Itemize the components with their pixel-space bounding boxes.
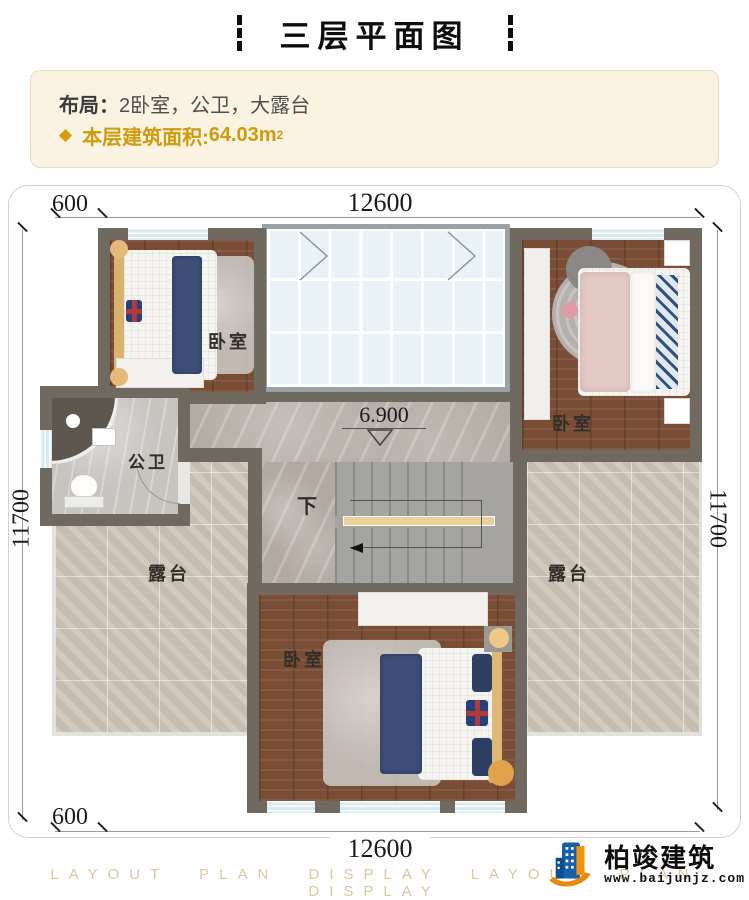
brand-website: www.baijunjz.com xyxy=(604,872,745,886)
terrace-right-label: 露台 xyxy=(548,560,590,586)
area-line: ◆ 本层建筑面积: 64.03m 2 xyxy=(59,121,690,150)
layout-value: 2卧室，公卫，大露台 xyxy=(119,89,310,118)
brand-name: 柏竣建筑 xyxy=(604,845,745,872)
page-title: 三层平面图 xyxy=(280,11,470,56)
layout-label: 布局： xyxy=(59,89,119,118)
dim-top-offset: 600 xyxy=(40,191,100,218)
skylight-opening-marker-icon xyxy=(447,231,476,281)
window xyxy=(340,801,440,813)
bedroom-tr-pouf xyxy=(562,302,578,318)
bathroom-toilet xyxy=(70,474,98,498)
bedroom-tr-nightstand xyxy=(664,240,690,266)
bedroom-b-pouf xyxy=(488,760,514,786)
bathroom-label: 公卫 xyxy=(128,448,168,473)
dim-line-top xyxy=(55,217,700,218)
brand-text-block: 柏竣建筑 www.baijunjz.com xyxy=(604,845,745,886)
bedroom-top-left-label: 卧室 xyxy=(208,328,250,354)
layout-line: 布局： 2卧室，公卫，大露台 xyxy=(59,89,690,118)
dim-line-bottom xyxy=(55,831,700,832)
bedroom-b-wardrobe xyxy=(358,592,488,626)
area-label: 本层建筑面积: xyxy=(82,121,209,150)
bedroom-tl-blanket xyxy=(172,256,202,374)
brand-logo-block: 柏竣建筑 www.baijunjz.com xyxy=(544,838,745,892)
bedroom-b-pillow xyxy=(472,654,492,692)
bedroom-b-blanket xyxy=(380,654,422,774)
bedroom-tl-flag-pillow xyxy=(126,300,142,322)
area-superscript: 2 xyxy=(277,128,284,142)
info-card: 布局： 2卧室，公卫，大露台 ◆ 本层建筑面积: 64.03m 2 xyxy=(30,70,719,168)
bedroom-b-nightstand-lamp xyxy=(489,628,509,648)
dim-left-height: 11700 xyxy=(9,479,36,559)
title-dash-right-icon xyxy=(508,15,513,51)
bedroom-tr-nightstand xyxy=(664,398,690,424)
title-dash-left-icon xyxy=(237,15,242,51)
terrace-right-floor xyxy=(527,462,702,736)
stair-path-line xyxy=(350,500,482,548)
bathroom-sink xyxy=(92,428,116,446)
terrace-left-label: 露台 xyxy=(148,560,190,586)
window xyxy=(455,801,505,813)
diamond-icon: ◆ xyxy=(59,125,72,145)
dim-bottom-offset: 600 xyxy=(40,804,100,831)
bedroom-tl-nightstand xyxy=(110,240,128,258)
bedroom-bottom-label: 卧室 xyxy=(283,646,325,672)
bedroom-tl-nightstand xyxy=(110,368,128,386)
elevation-value: 6.900 xyxy=(342,402,426,428)
skylight-opening-marker-icon xyxy=(299,231,328,281)
bedroom-top-right-label: 卧室 xyxy=(552,410,594,436)
window xyxy=(128,228,208,240)
window xyxy=(40,430,52,468)
dim-bottom-width: 12600 xyxy=(330,834,430,864)
hall-strip-floor xyxy=(262,462,335,583)
bathroom-toilet-tank xyxy=(64,496,104,508)
wall-segment xyxy=(262,392,510,402)
elevation-triangle-icon xyxy=(367,429,393,446)
wall-segment xyxy=(248,448,262,588)
area-value: 64.03m xyxy=(209,124,277,147)
window xyxy=(592,228,664,240)
bedroom-b-flag-pillow xyxy=(466,700,488,726)
dim-top-width: 12600 xyxy=(330,188,430,218)
baijun-logo-icon xyxy=(544,838,598,892)
bedroom-tr-accent-pillows xyxy=(656,275,678,389)
stair-direction-arrow-icon xyxy=(350,543,363,553)
bedroom-tr-pillow xyxy=(630,271,656,393)
dim-right-height: 11700 xyxy=(704,479,731,559)
bedroom-tr-duvet xyxy=(580,272,630,392)
bathroom-showerhead-icon xyxy=(66,414,80,428)
stairs-down-label: 下 xyxy=(297,490,320,519)
page-header: 三层平面图 xyxy=(0,10,749,56)
wall-segment xyxy=(513,448,527,583)
bedroom-tr-wardrobe xyxy=(524,248,550,420)
window xyxy=(267,801,315,813)
